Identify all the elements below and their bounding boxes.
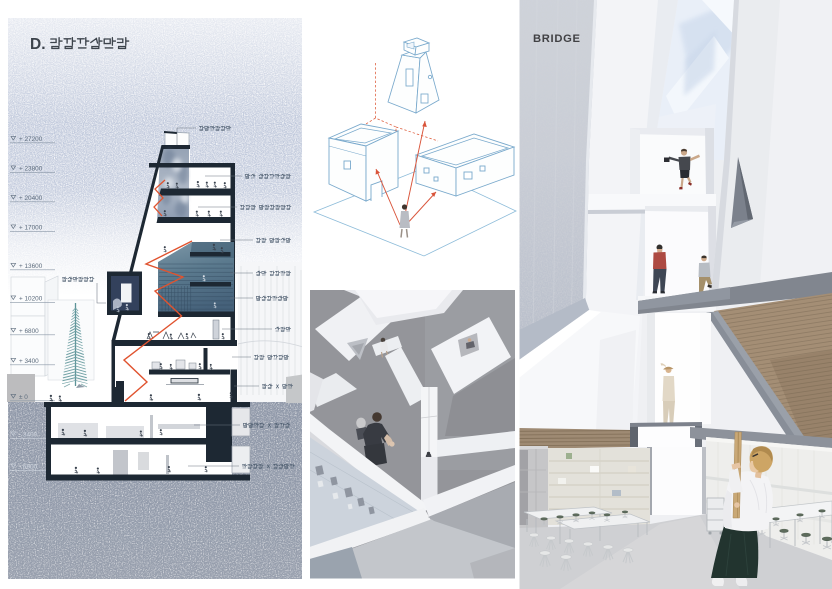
svg-text:+ 20400: + 20400	[19, 195, 43, 202]
svg-text:- 6800: - 6800	[19, 464, 38, 471]
svg-text:+ 3400: + 3400	[19, 358, 39, 365]
svg-text:± 0: ± 0	[19, 394, 28, 401]
svg-text:D.: D.	[30, 36, 46, 53]
svg-text:+ 10200: + 10200	[19, 296, 43, 303]
svg-text:+ 27200: + 27200	[19, 136, 43, 143]
svg-text:+ 23800: + 23800	[19, 166, 43, 173]
svg-text:- 3400: - 3400	[19, 432, 38, 439]
svg-text:+ 13600: + 13600	[19, 263, 43, 270]
svg-text:BRIDGE: BRIDGE	[533, 33, 581, 45]
svg-text:+ 17000: + 17000	[19, 225, 43, 232]
svg-text:+ 6800: + 6800	[19, 328, 39, 335]
